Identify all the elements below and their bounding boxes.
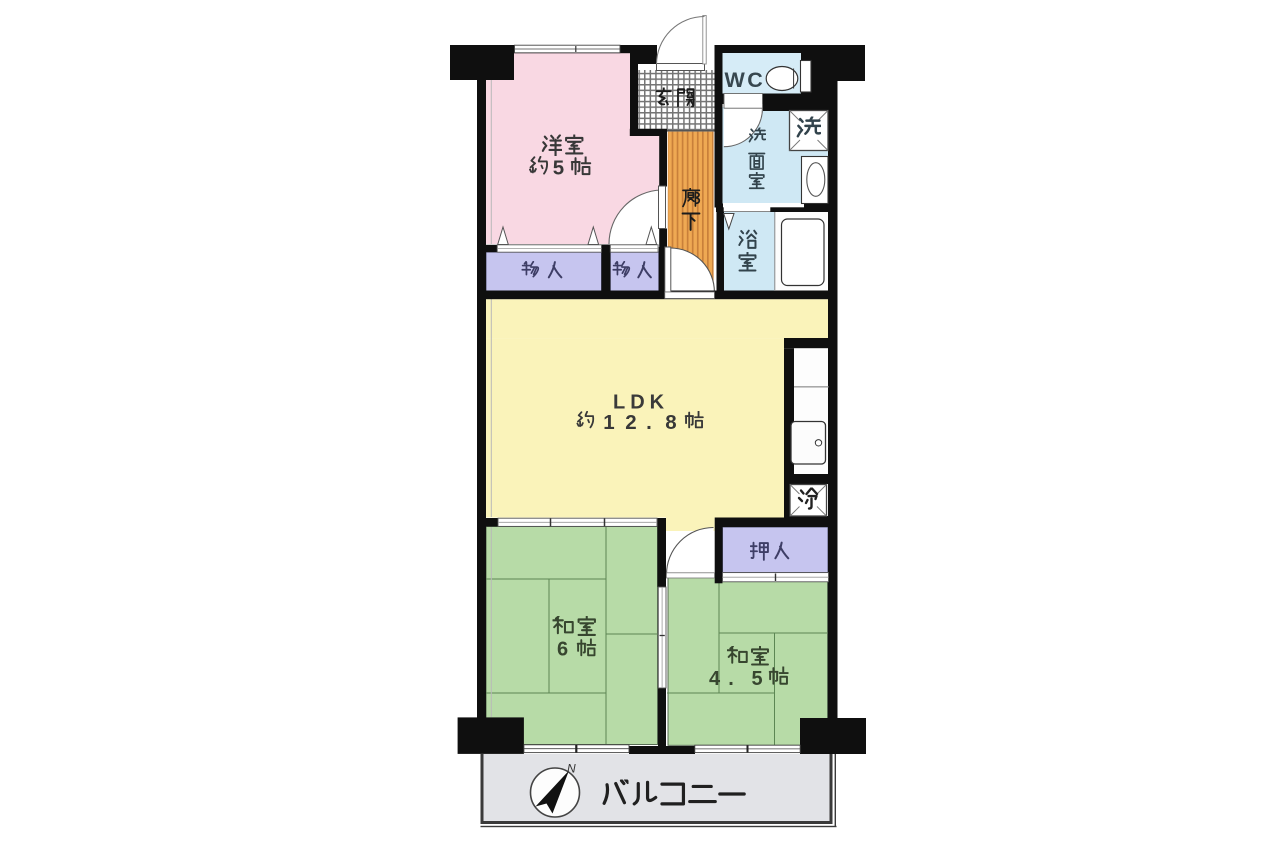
svg-text:.: . <box>728 668 734 690</box>
svg-text:N: N <box>567 762 576 776</box>
svg-text:4: 4 <box>709 668 721 690</box>
svg-text:5: 5 <box>751 668 762 690</box>
svg-text:WC: WC <box>725 68 766 92</box>
svg-text:.: . <box>646 411 652 434</box>
svg-text:5: 5 <box>553 157 564 180</box>
svg-text:LDK: LDK <box>613 392 669 414</box>
svg-text:6: 6 <box>557 639 568 661</box>
svg-text:1: 1 <box>603 411 614 434</box>
svg-text:2: 2 <box>625 411 636 434</box>
svg-text:8: 8 <box>665 411 676 434</box>
